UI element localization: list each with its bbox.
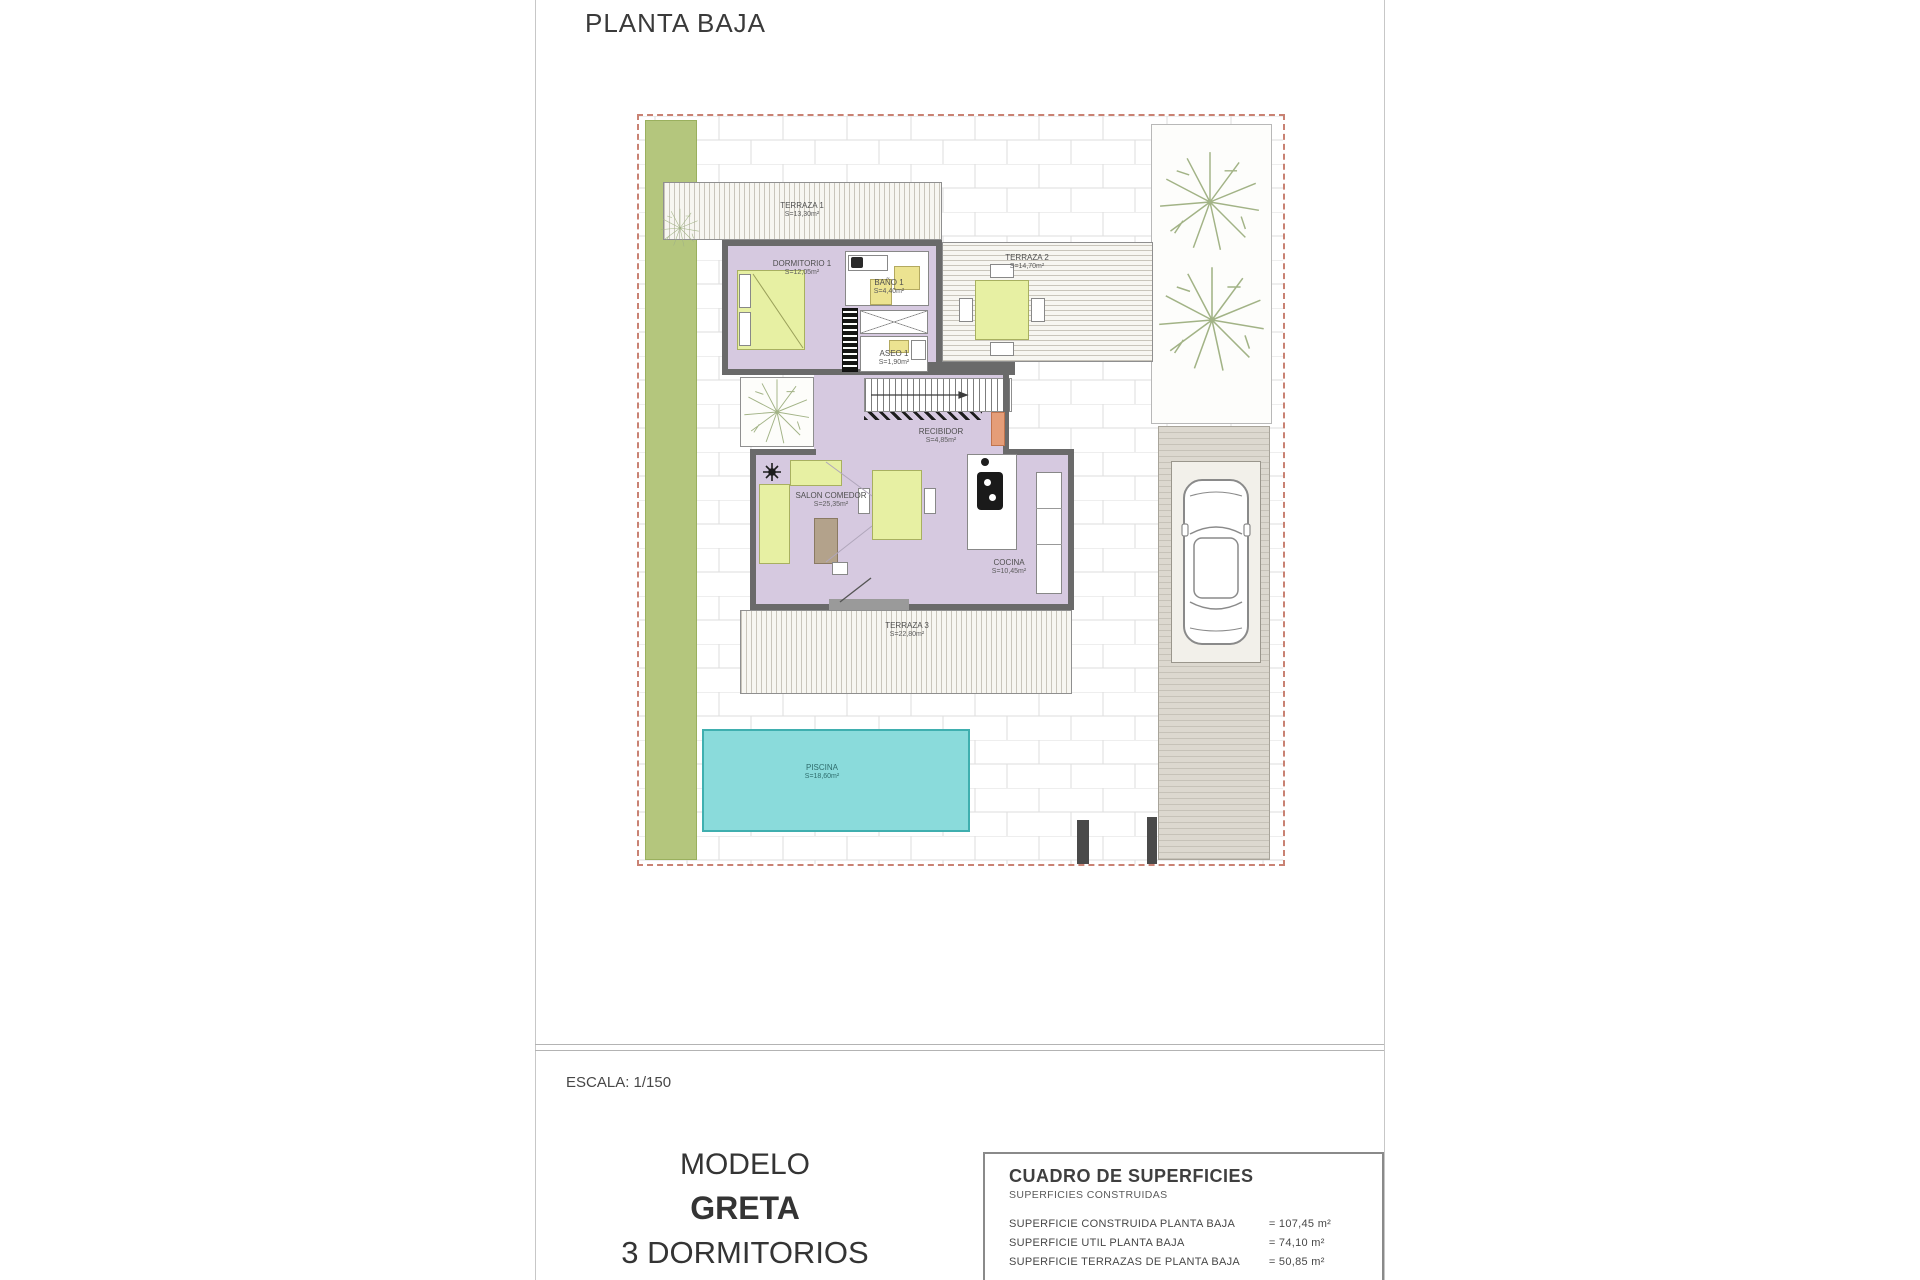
outdoor-chair (1031, 298, 1045, 322)
room-area: S=14,70m² (992, 263, 1062, 271)
table-row: SUPERFICIE UTIL PLANTA BAJA = 74,10 m² (1009, 1234, 1368, 1253)
cooktop (977, 472, 1003, 510)
room-area: S=4,40m² (857, 288, 921, 296)
room-area: S=4,85m² (902, 437, 980, 445)
surfaces-table-title: CUADRO DE SUPERFICIES (1009, 1166, 1368, 1187)
cooktop-burner (989, 494, 996, 501)
bed-pillow (739, 312, 751, 346)
surfaces-table: CUADRO DE SUPERFICIES SUPERFICIES CONSTR… (983, 1152, 1384, 1280)
room-area: S=12,05m² (757, 269, 847, 277)
room-name: DORMITORIO 1 (773, 259, 832, 268)
room-name: BAÑO 1 (874, 278, 903, 287)
surface-value: = 74,10 m² (1269, 1234, 1368, 1253)
outdoor-chair (990, 342, 1014, 356)
counter-divider (1036, 508, 1062, 509)
dining-table (872, 470, 922, 540)
room-name: TERRAZA 2 (1005, 253, 1049, 262)
outdoor-table (975, 280, 1029, 340)
room-area: S=22,80m² (867, 631, 947, 639)
dining-chair (924, 488, 936, 514)
surfaces-table-rows: SUPERFICIE CONSTRUIDA PLANTA BAJA = 107,… (1009, 1215, 1368, 1272)
room-name: RECIBIDOR (919, 427, 963, 436)
page-title: PLANTA BAJA (585, 8, 766, 39)
room-label-dormitorio1: DORMITORIO 1 S=12,05m² (757, 260, 847, 277)
gate-post (1077, 820, 1089, 864)
sliding-door-frame (829, 599, 909, 610)
scale-label: ESCALA: 1/150 (566, 1074, 671, 1091)
room-name: PISCINA (806, 763, 838, 772)
cooktop-burner (984, 479, 991, 486)
entry-deck-boards (864, 378, 1012, 412)
bath-sink (851, 257, 863, 268)
room-label-bano1: BAÑO 1 S=4,40m² (857, 279, 921, 296)
tv-unit (814, 518, 838, 564)
entry-console (991, 412, 1005, 446)
room-label-terraza2: TERRAZA 2 S=14,70m² (992, 254, 1062, 271)
room-name: COCINA (993, 558, 1024, 567)
room-label-terraza1: TERRAZA 1 S=13,30m² (757, 202, 847, 219)
page-right-border (1384, 0, 1385, 1280)
room-name: TERRAZA 3 (885, 621, 929, 630)
room-label-piscina: PISCINA S=18,60m² (777, 764, 867, 781)
room-area: S=1,90m² (862, 359, 926, 367)
surface-label: SUPERFICIE UTIL PLANTA BAJA (1009, 1234, 1269, 1253)
room-label-salon: SALON COMEDOR S=25,35m² (789, 492, 873, 509)
room-name: SALON COMEDOR (795, 491, 866, 500)
table-row: SUPERFICIE TERRAZAS DE PLANTA BAJA = 50,… (1009, 1253, 1368, 1272)
room-area: S=10,45m² (967, 568, 1051, 576)
side-table (832, 562, 848, 575)
section-cut-marks (864, 412, 982, 420)
surfaces-table-subtitle: SUPERFICIES CONSTRUIDAS (1009, 1189, 1368, 1201)
model-title-block: MODELO GRETA 3 DORMITORIOS (598, 1148, 892, 1271)
titleblock-separator-bottom (535, 1050, 1384, 1051)
sofa (790, 460, 842, 486)
surface-value: = 50,85 m² (1269, 1253, 1368, 1272)
room-name: TERRAZA 1 (780, 201, 824, 210)
room-area: S=18,60m² (777, 773, 867, 781)
wardrobe (842, 308, 858, 372)
room-label-cocina: COCINA S=10,45m² (967, 559, 1051, 576)
surface-label: SUPERFICIE CONSTRUIDA PLANTA BAJA (1009, 1215, 1269, 1234)
counter-divider (1036, 544, 1062, 545)
sofa (759, 484, 790, 564)
drawing-sheet: PLANTA BAJA (0, 0, 1920, 1280)
table-row: SUPERFICIE CONSTRUIDA PLANTA BAJA = 107,… (1009, 1215, 1368, 1234)
gate-post (1147, 817, 1157, 864)
page-left-border (535, 0, 536, 1280)
outdoor-chair (959, 298, 973, 322)
bed-pillow (739, 274, 751, 308)
titleblock-separator-top (535, 1044, 1384, 1045)
storage-closet (860, 310, 928, 334)
room-name: ASEO 1 (880, 349, 909, 358)
surface-label: SUPERFICIE TERRAZAS DE PLANTA BAJA (1009, 1253, 1269, 1272)
floor-plan: TERRAZA 1 S=13,30m² DORMITORIO 1 S=12,05… (637, 114, 1285, 866)
tree-bed (1151, 124, 1272, 424)
room-label-recibidor: RECIBIDOR S=4,85m² (902, 428, 980, 445)
room-label-terraza3: TERRAZA 3 S=22,80m² (867, 622, 947, 639)
room-area: S=13,30m² (757, 211, 847, 219)
surface-value: = 107,45 m² (1269, 1215, 1368, 1234)
model-label: MODELO (598, 1148, 892, 1182)
patio-planter (740, 377, 814, 447)
room-label-aseo1: ASEO 1 S=1,90m² (862, 350, 926, 367)
model-bedrooms: 3 DORMITORIOS (598, 1235, 892, 1271)
room-area: S=25,35m² (789, 501, 873, 509)
parking-pad (1171, 461, 1261, 663)
model-name: GRETA (598, 1190, 892, 1227)
